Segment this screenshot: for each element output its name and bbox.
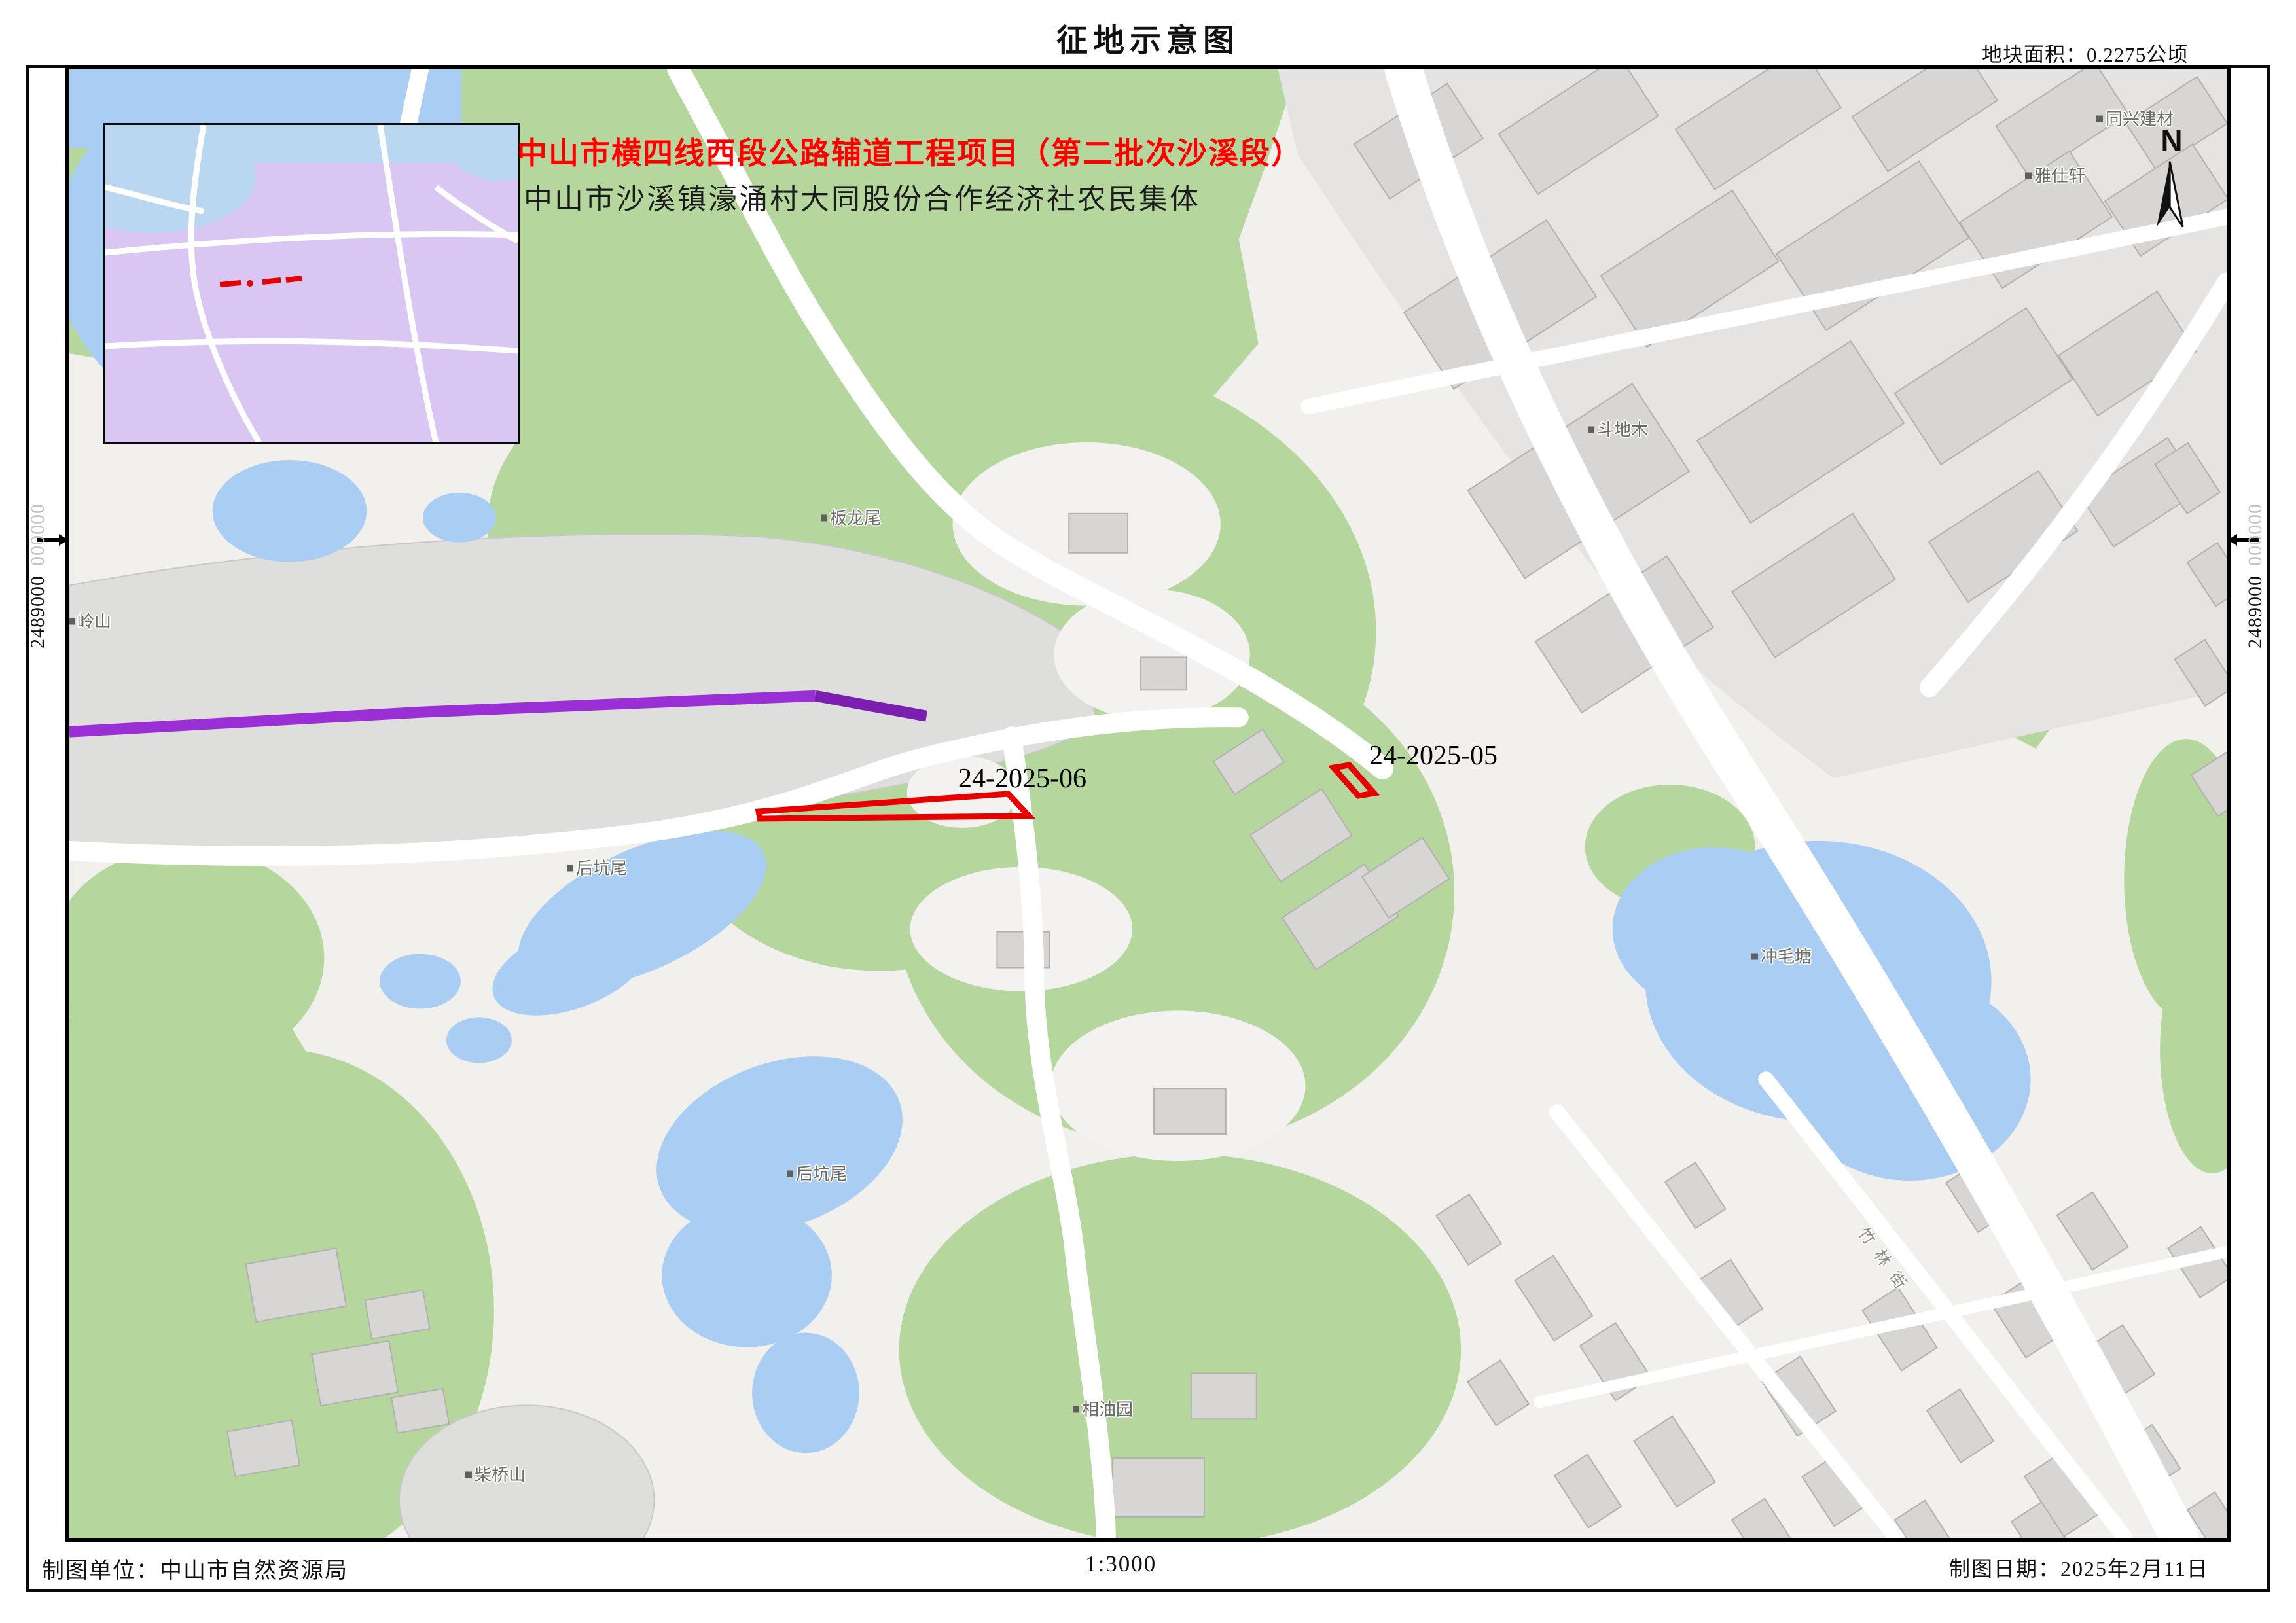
place-marker-icon bbox=[567, 865, 573, 872]
place-marker-icon bbox=[2025, 173, 2032, 179]
place-marker-icon bbox=[821, 515, 827, 522]
place-marker-icon bbox=[68, 618, 75, 625]
parcel-label-05: 24-2025-05 bbox=[1369, 740, 1498, 772]
project-title: 中山市横四线西段公路辅道工程项目（第二批次沙溪段） bbox=[517, 130, 1302, 173]
page-title: 征地示意图 bbox=[0, 14, 2296, 60]
place-label-houkengwei-2: 后坑尾 bbox=[787, 1161, 847, 1185]
place-label-chaiqiaoshan: 柴桥山 bbox=[465, 1462, 526, 1486]
owner-title: 中山市沙溪镇濠涌村大同股份合作经济社农民集体 bbox=[524, 175, 1200, 217]
place-marker-icon bbox=[1588, 427, 1594, 433]
place-label-yashixuan: 雅仕轩 bbox=[2025, 163, 2085, 187]
place-label-lingshan: 岭山 bbox=[68, 609, 111, 633]
footer-agency: 制图单位：中山市自然资源局 bbox=[42, 1552, 348, 1584]
place-label-houkengwei-1: 后坑尾 bbox=[567, 855, 627, 880]
place-marker-icon bbox=[465, 1472, 472, 1478]
place-marker-icon bbox=[2096, 116, 2103, 122]
place-marker-icon bbox=[787, 1171, 793, 1177]
place-label-doudimu: 斗地木 bbox=[1588, 417, 1648, 441]
place-label-banlongwei: 板龙尾 bbox=[821, 505, 881, 529]
inset-locator-map bbox=[103, 123, 520, 444]
footer-date: 制图日期：2025年2月11日 bbox=[1949, 1552, 2209, 1582]
map-canvas: 中山市横四线西段公路辅道工程项目（第二批次沙溪段） 中山市沙溪镇濠涌村大同股份合… bbox=[65, 65, 2231, 1542]
footer-scale: 1:3000 bbox=[1085, 1551, 1157, 1577]
place-label-xiangyouyuan: 相油园 bbox=[1073, 1397, 1133, 1421]
place-label-tongxing: 同兴建材 bbox=[2096, 106, 2174, 130]
parcel-label-06: 24-2025-06 bbox=[958, 763, 1086, 794]
place-label-chongmaotang: 冲毛塘 bbox=[1751, 944, 1812, 968]
area-note: 地块面积：0.2275公顷 bbox=[1982, 38, 2188, 67]
place-marker-icon bbox=[1073, 1406, 1079, 1413]
place-marker-icon bbox=[1751, 954, 1758, 960]
